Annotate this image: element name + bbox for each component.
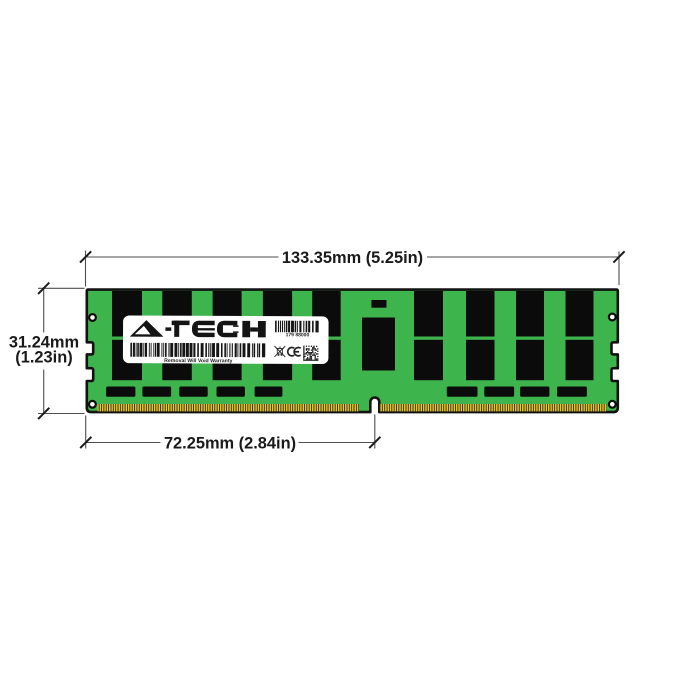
svg-text:(1.23in): (1.23in) <box>15 349 72 367</box>
svg-text:133.35mm (5.25in): 133.35mm (5.25in) <box>282 249 423 267</box>
svg-text:179 88000: 179 88000 <box>286 332 310 338</box>
svg-text:Removal Will Void Warranty: Removal Will Void Warranty <box>164 358 232 364</box>
svg-text:72.25mm (2.84in): 72.25mm (2.84in) <box>164 435 296 453</box>
